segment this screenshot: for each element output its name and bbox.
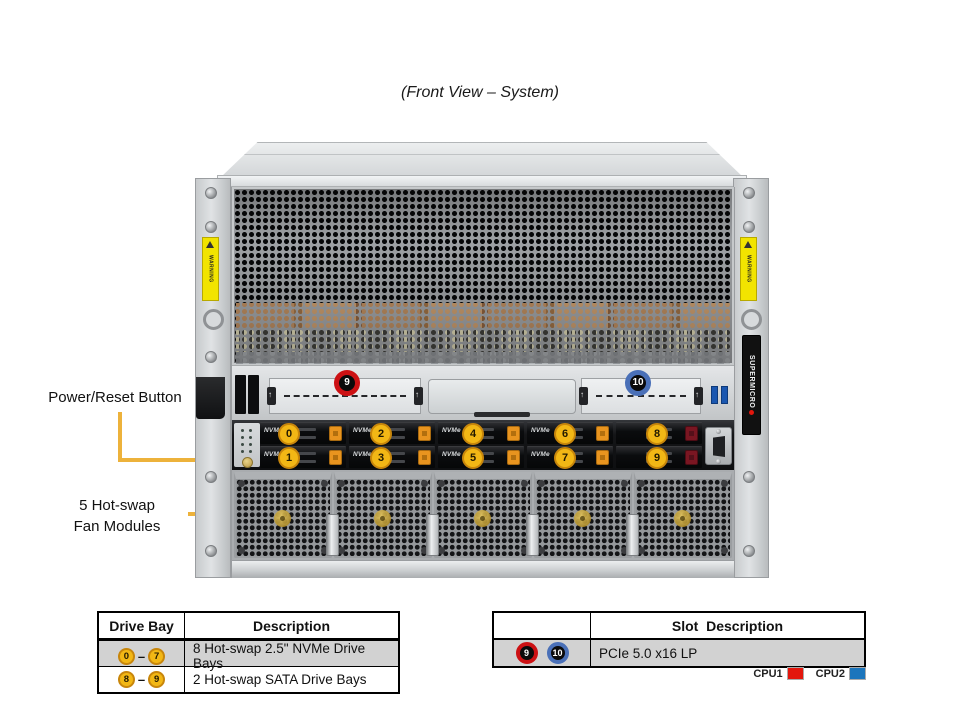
slot-latch-icon — [694, 387, 703, 405]
screw-icon — [321, 480, 328, 487]
nvme-latch-icon — [329, 426, 342, 441]
drive-table-header-bay: Drive Bay — [99, 613, 185, 638]
chassis-top-lid — [221, 142, 743, 177]
drive-bay-9: 9 — [616, 446, 702, 468]
figure-title: (Front View – System) — [0, 84, 960, 102]
screw-icon — [638, 547, 645, 554]
drive-bay-0: NVMe0 — [260, 422, 346, 444]
screw-icon — [421, 480, 428, 487]
drive-bay-number-badge: 4 — [462, 423, 484, 445]
port-blank — [248, 375, 259, 414]
slot-badge-9: 9 — [334, 370, 360, 396]
sata-latch-icon — [685, 426, 698, 441]
slot-description-cell: PCIe 5.0 x16 LP — [591, 640, 864, 666]
mesh-shading — [234, 189, 732, 363]
status-led-icon — [249, 450, 252, 453]
slot-row: 910 — [232, 365, 734, 420]
drive-bay-column: NVMe6NVMe7 — [527, 422, 613, 468]
drive-bay-grid: NVMe0NVMe1NVMe2NVMe3NVMe4NVMe5NVMe6NVMe7… — [260, 422, 706, 468]
chassis-top-edge — [217, 175, 747, 187]
fan-module — [534, 472, 632, 558]
sata-latch-icon — [685, 450, 698, 465]
slot-table-body: 910PCIe 5.0 x16 LP — [494, 640, 864, 666]
drive-bay-number-badge: 5 — [462, 447, 484, 469]
screw-icon — [716, 459, 721, 464]
blank-filler-plate — [428, 379, 576, 414]
screw-icon — [621, 480, 628, 487]
cpu-color-swatch — [787, 667, 804, 680]
fan-hub-icon — [274, 510, 291, 527]
fan-hub-icon — [374, 510, 391, 527]
screw-icon — [205, 471, 217, 483]
nvme-latch-icon — [507, 450, 520, 465]
screw-icon — [438, 547, 445, 554]
screw-icon — [205, 545, 217, 557]
screw-icon — [238, 547, 245, 554]
ear-hole-icon — [741, 309, 762, 330]
status-led-icon — [249, 443, 252, 446]
ear-hole-icon — [203, 309, 224, 330]
fan-hub-icon — [574, 510, 591, 527]
screw-icon — [538, 547, 545, 554]
drive-bay-4: NVMe4 — [438, 422, 524, 444]
drive-bay-column: NVMe0NVMe1 — [260, 422, 346, 468]
slot-latch-icon — [414, 387, 423, 405]
fan-hub-icon — [674, 510, 691, 527]
drive-table-row: 0–78 Hot-swap 2.5" NVMe Drive Bays — [99, 641, 398, 666]
chassis-handle — [196, 377, 225, 419]
slot-badge-9: 9 — [516, 642, 538, 664]
drive-bay-5: NVMe5 — [438, 446, 524, 468]
rack-ear-right: WARNING SUPERMICRO — [733, 178, 769, 578]
usb-port — [721, 386, 728, 404]
drive-bay-6: NVMe6 — [527, 422, 613, 444]
fan-modules-label-line2: Fan Modules — [48, 516, 186, 537]
warning-sticker: WARNING — [202, 237, 219, 301]
fan-modules-label-line1: 5 Hot-swap — [48, 495, 186, 516]
slot-table-header-description: Slot Description — [591, 613, 864, 638]
slot-table-header-empty — [494, 613, 591, 638]
slot-badge-number: 9 — [344, 378, 350, 388]
fan-hub-icon — [474, 510, 491, 527]
drive-bay-column: NVMe4NVMe5 — [438, 422, 524, 468]
screw-icon — [743, 471, 755, 483]
cpu-label: CPU1 — [753, 668, 782, 680]
drive-bay-row: NVMe0NVMe1NVMe2NVMe3NVMe4NVMe5NVMe6NVMe7… — [232, 420, 734, 470]
screw-icon — [205, 187, 217, 199]
slot-table: Slot Description 910PCIe 5.0 x16 LP — [492, 611, 866, 668]
bay-number-badge: 8 — [118, 671, 135, 688]
status-led-icon — [249, 436, 252, 439]
fan-module — [334, 472, 432, 558]
screw-icon — [338, 547, 345, 554]
screw-icon — [743, 545, 755, 557]
figure-page: (Front View – System) Power/Reset Button… — [0, 0, 960, 720]
fan-module — [434, 472, 532, 558]
drive-bay-number-badge: 2 — [370, 423, 392, 445]
slot-table-header: Slot Description — [494, 613, 864, 640]
cpu-legend-item: CPU2 — [816, 667, 866, 680]
bay-number-badge: 0 — [118, 648, 135, 665]
cpu-label: CPU2 — [816, 668, 845, 680]
nvme-label: NVMe — [442, 427, 461, 434]
nvme-latch-icon — [596, 450, 609, 465]
screw-icon — [521, 480, 528, 487]
drive-bay-number-badge: 9 — [646, 447, 668, 469]
bay-number-badge: 9 — [148, 671, 165, 688]
slot-latch-icon — [267, 387, 276, 405]
vga-port — [705, 427, 732, 465]
fan-handle — [526, 514, 539, 556]
cpu-color-swatch — [849, 667, 866, 680]
cpu-legend: CPU1CPU2 — [492, 667, 866, 680]
fan-handle — [326, 514, 339, 556]
power-reset-button — [242, 457, 253, 468]
screw-icon — [721, 547, 728, 554]
slot-badge-number: 9 — [524, 649, 529, 658]
status-led-icon — [241, 450, 244, 453]
screw-icon — [716, 429, 721, 434]
drive-table-row: 8–92 Hot-swap SATA Drive Bays — [99, 666, 398, 692]
nvme-latch-icon — [418, 450, 431, 465]
screw-icon — [338, 480, 345, 487]
fan-modules — [232, 470, 734, 560]
nvme-latch-icon — [418, 426, 431, 441]
slot-badge-number: 10 — [632, 378, 643, 388]
supermicro-logo: SUPERMICRO — [742, 335, 761, 435]
drive-table-body: 0–78 Hot-swap 2.5" NVMe Drive Bays8–92 H… — [99, 641, 398, 692]
control-panel — [234, 423, 260, 467]
drive-bay-number-badge: 7 — [554, 447, 576, 469]
nvme-latch-icon — [507, 426, 520, 441]
drive-bay-number-badge: 1 — [278, 447, 300, 469]
slot-latch-icon — [579, 387, 588, 405]
nvme-label: NVMe — [442, 451, 461, 458]
power-reset-label: Power/Reset Button — [36, 389, 194, 406]
drive-bay-7: NVMe7 — [527, 446, 613, 468]
drive-table-header-description: Description — [185, 613, 398, 638]
screw-icon — [205, 221, 217, 233]
warning-sticker-text: WARNING — [746, 255, 752, 283]
fan-modules-label: 5 Hot-swap Fan Modules — [48, 495, 186, 537]
screw-icon — [205, 351, 217, 363]
drive-bay-number-badge: 8 — [646, 423, 668, 445]
range-dash: – — [138, 672, 145, 687]
drive-bay-1: NVMe1 — [260, 446, 346, 468]
drive-bay-column: 89 — [616, 422, 702, 468]
supermicro-logo-text: SUPERMICRO — [748, 355, 755, 408]
nvme-latch-icon — [596, 426, 609, 441]
fan-handle — [426, 514, 439, 556]
server-chassis-photo: WARNING WARNING SUPERMICRO — [195, 142, 769, 578]
chassis-bottom-rail — [232, 560, 734, 578]
slot-badge-10: 10 — [625, 370, 651, 396]
drive-bay-column: NVMe2NVMe3 — [349, 422, 435, 468]
drive-bay-2: NVMe2 — [349, 422, 435, 444]
drive-bay-number-badge: 3 — [370, 447, 392, 469]
status-led-icon — [241, 436, 244, 439]
screw-icon — [743, 221, 755, 233]
drive-bay-range-cell: 8–9 — [99, 667, 185, 692]
nvme-label: NVMe — [531, 451, 550, 458]
logo-dot-icon — [749, 410, 754, 415]
screw-icon — [638, 480, 645, 487]
warning-sticker-text: WARNING — [208, 255, 214, 283]
drive-bay-3: NVMe3 — [349, 446, 435, 468]
slot-badges-cell: 910 — [494, 640, 591, 666]
nvme-latch-icon — [329, 450, 342, 465]
drive-bay-number-badge: 0 — [278, 423, 300, 445]
front-mesh-grille — [232, 187, 734, 365]
fan-module — [634, 472, 732, 558]
screw-icon — [238, 480, 245, 487]
range-dash: – — [138, 649, 145, 664]
screw-icon — [538, 480, 545, 487]
status-led-icon — [249, 429, 252, 432]
slot-badge-number: 10 — [552, 649, 562, 658]
status-led-icon — [241, 443, 244, 446]
slot-badge-10: 10 — [547, 642, 569, 664]
warning-sticker: WARNING — [740, 237, 757, 301]
status-led-icon — [241, 429, 244, 432]
nvme-label: NVMe — [531, 427, 550, 434]
drive-description-cell: 2 Hot-swap SATA Drive Bays — [185, 667, 398, 692]
usb-port — [711, 386, 718, 404]
fan-handle — [626, 514, 639, 556]
cpu-legend-item: CPU1 — [753, 667, 803, 680]
drive-bay-table: Drive Bay Description 0–78 Hot-swap 2.5"… — [97, 611, 400, 694]
screw-icon — [743, 187, 755, 199]
drive-bay-number-badge: 6 — [554, 423, 576, 445]
screw-icon — [438, 480, 445, 487]
bay-number-badge: 7 — [148, 648, 165, 665]
screw-icon — [721, 480, 728, 487]
slot-table-row: 910PCIe 5.0 x16 LP — [494, 640, 864, 666]
drive-bay-8: 8 — [616, 422, 702, 444]
chassis-front-face: 910 NVMe0NVMe1NVMe2NVMe3NVMe4NVMe5NVMe6N… — [231, 187, 735, 578]
port-blank — [235, 375, 246, 414]
fan-module — [234, 472, 332, 558]
drive-table-header: Drive Bay Description — [99, 613, 398, 641]
rack-ear-left: WARNING — [195, 178, 231, 578]
